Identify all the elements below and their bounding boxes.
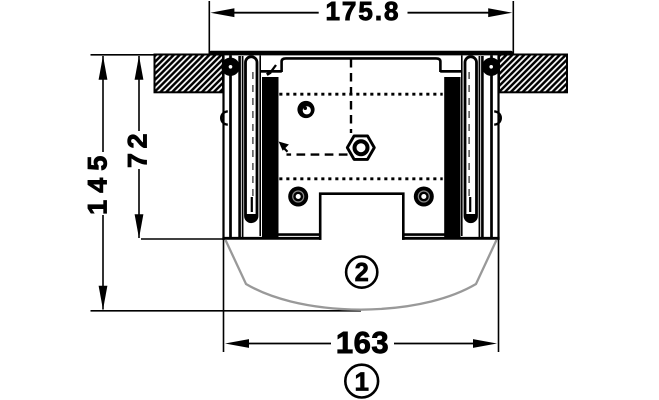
- svg-text:163: 163: [336, 325, 389, 360]
- svg-text:175.8: 175.8: [325, 0, 400, 26]
- svg-text:2: 2: [355, 259, 369, 287]
- svg-text:1: 1: [354, 366, 368, 396]
- svg-text:145: 145: [82, 149, 112, 215]
- svg-text:72: 72: [122, 129, 152, 168]
